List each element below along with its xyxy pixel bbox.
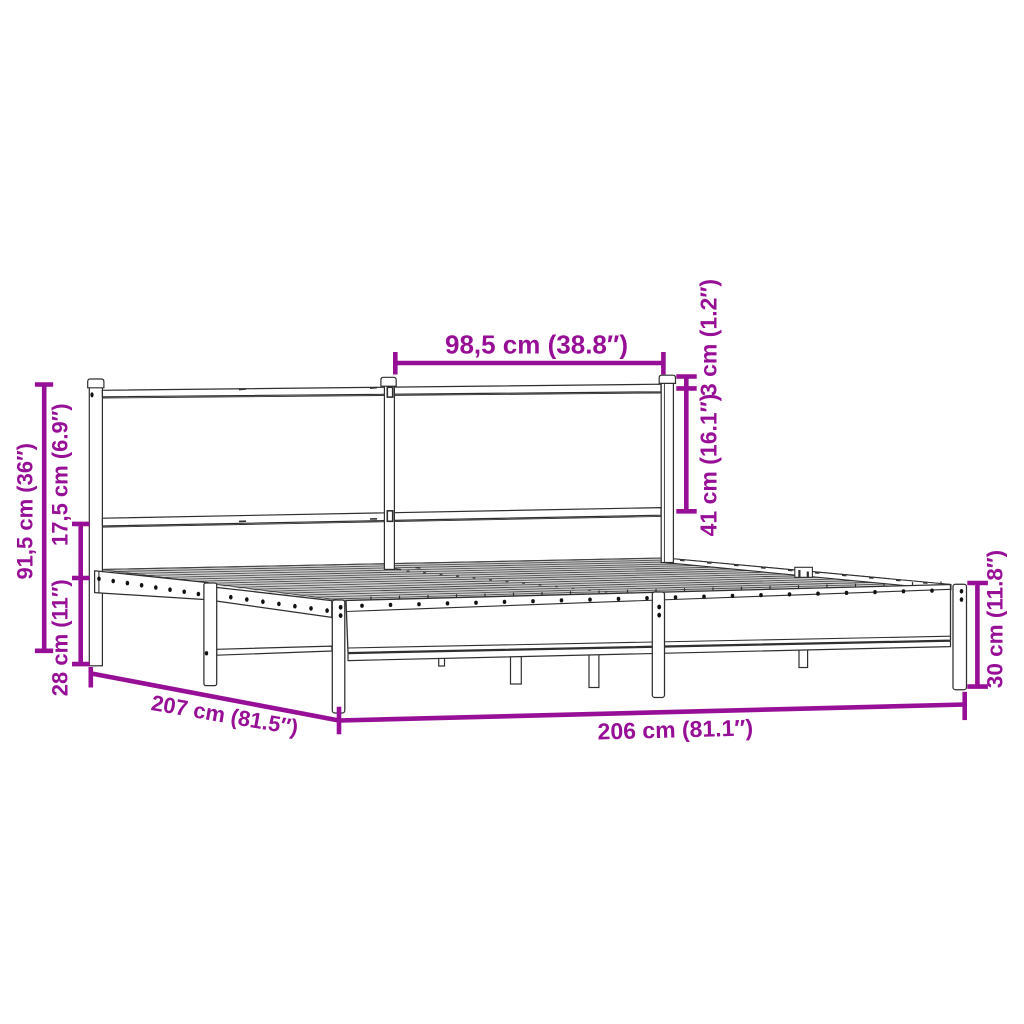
svg-text:3 cm (1.2″): 3 cm (1.2″) bbox=[696, 279, 722, 396]
svg-text:28 cm (11″): 28 cm (11″) bbox=[47, 579, 72, 696]
svg-text:98,5 cm (38.8″): 98,5 cm (38.8″) bbox=[445, 330, 628, 360]
svg-text:30 cm (11.8″): 30 cm (11.8″) bbox=[983, 550, 1008, 688]
svg-text:206 cm (81.1″): 206 cm (81.1″) bbox=[597, 714, 753, 744]
svg-text:41 cm (16.1″): 41 cm (16.1″) bbox=[696, 394, 722, 537]
svg-text:91,5 cm (36″): 91,5 cm (36″) bbox=[12, 443, 37, 580]
svg-text:17,5 cm (6.9″): 17,5 cm (6.9″) bbox=[47, 403, 72, 546]
